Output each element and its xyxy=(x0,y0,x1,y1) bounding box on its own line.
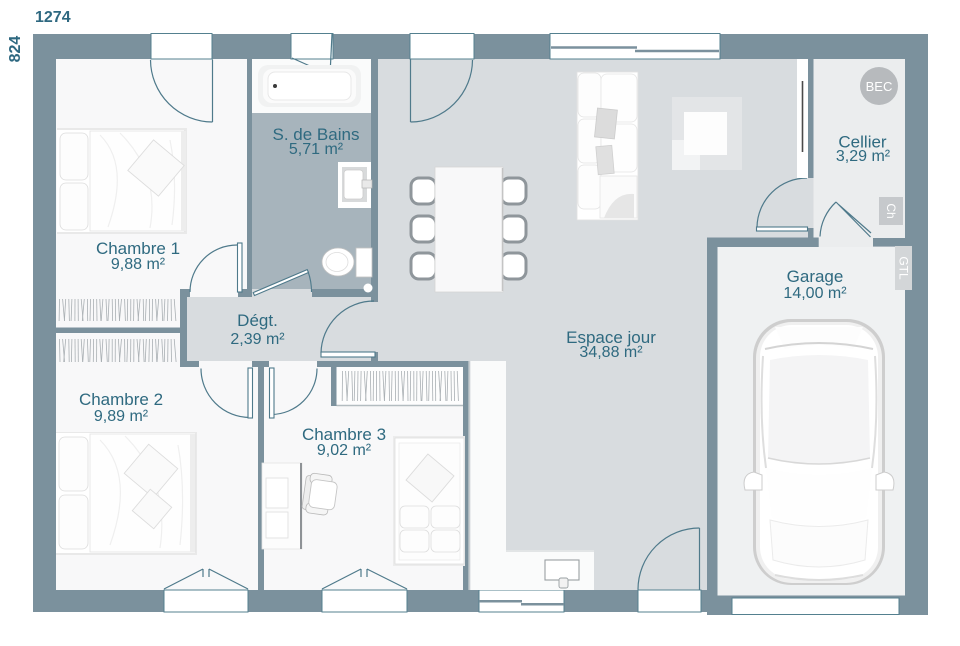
svg-text:Chambre 2: Chambre 2 xyxy=(79,390,163,409)
svg-text:2,39 m²: 2,39 m² xyxy=(230,331,285,348)
svg-text:1274: 1274 xyxy=(35,9,71,26)
svg-text:5,71 m²: 5,71 m² xyxy=(289,141,344,158)
svg-text:34,88 m²: 34,88 m² xyxy=(579,344,643,361)
svg-text:9,02 m²: 9,02 m² xyxy=(317,442,372,459)
svg-text:824: 824 xyxy=(7,36,24,63)
svg-text:14,00 m²: 14,00 m² xyxy=(783,285,847,302)
svg-text:GTL: GTL xyxy=(897,256,911,280)
svg-text:3,29 m²: 3,29 m² xyxy=(836,148,891,165)
svg-text:9,89 m²: 9,89 m² xyxy=(94,408,149,425)
svg-text:Garage: Garage xyxy=(787,267,844,286)
svg-text:BEC: BEC xyxy=(866,79,893,94)
svg-text:Ch: Ch xyxy=(884,203,898,218)
svg-text:Dégt.: Dégt. xyxy=(237,311,278,330)
svg-text:9,88 m²: 9,88 m² xyxy=(111,256,166,273)
